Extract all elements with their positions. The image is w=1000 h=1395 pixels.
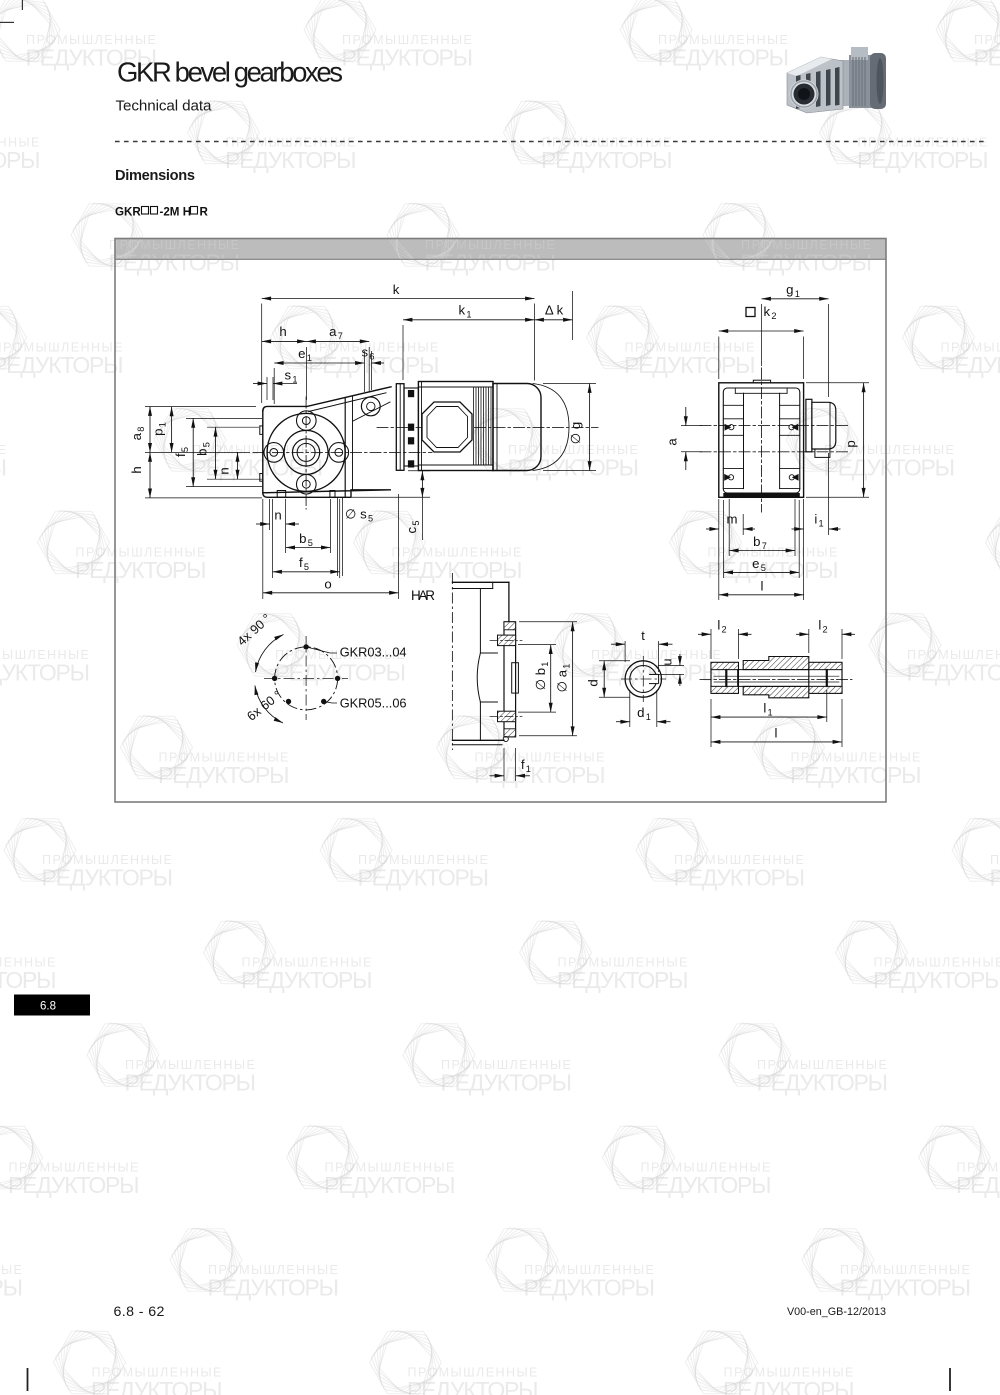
svg-text:n: n xyxy=(274,508,281,523)
svg-text:k: k xyxy=(393,282,400,297)
svg-text:n: n xyxy=(217,467,232,474)
svg-text:GKR05...06: GKR05...06 xyxy=(340,696,407,711)
svg-text:GKR: GKR xyxy=(115,206,141,219)
svg-text:HAR: HAR xyxy=(411,588,435,603)
svg-text:a: a xyxy=(665,438,680,446)
svg-text:p: p xyxy=(843,440,858,447)
svg-text:u: u xyxy=(660,658,675,665)
svg-text:R: R xyxy=(200,206,209,219)
svg-text:Δ k: Δ k xyxy=(545,303,564,318)
svg-text:∅ g: ∅ g xyxy=(568,422,583,445)
svg-text:-2M H: -2M H xyxy=(160,206,192,219)
svg-text:Dimensions: Dimensions xyxy=(115,168,195,184)
svg-text:t: t xyxy=(641,628,645,643)
svg-text:o: o xyxy=(324,577,331,592)
svg-text:GKR03...04: GKR03...04 xyxy=(340,645,407,660)
svg-text:m: m xyxy=(727,512,738,527)
svg-text:V00-en_GB-12/2013: V00-en_GB-12/2013 xyxy=(787,1306,886,1318)
svg-text:h: h xyxy=(129,466,144,473)
svg-text:GKR bevel gearboxes: GKR bevel gearboxes xyxy=(117,57,343,88)
svg-text:h: h xyxy=(279,324,286,339)
svg-text:d: d xyxy=(586,679,601,686)
svg-text:l: l xyxy=(761,579,764,594)
svg-text:l: l xyxy=(775,726,778,741)
svg-text:6.8: 6.8 xyxy=(40,1001,56,1013)
svg-text:Technical data: Technical data xyxy=(116,98,213,115)
svg-text:6.8 - 62: 6.8 - 62 xyxy=(114,1304,165,1320)
